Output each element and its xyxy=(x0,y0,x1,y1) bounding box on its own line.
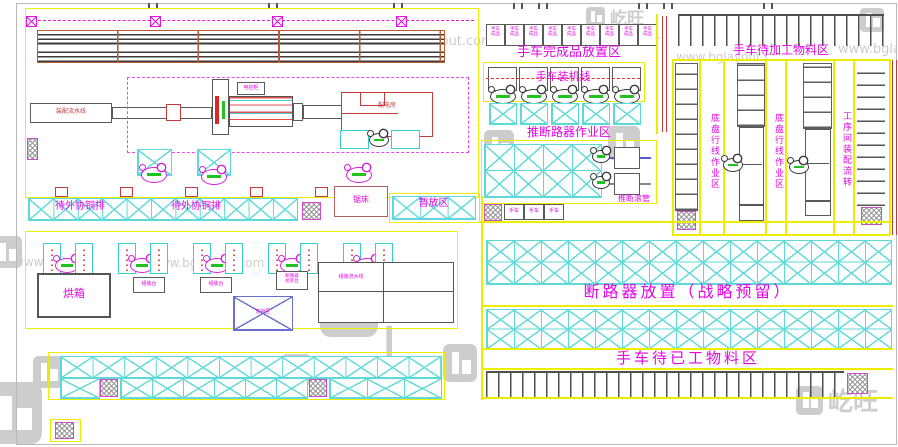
crossed-box-strip xyxy=(120,378,308,399)
cart-slot-label: 成品 xyxy=(601,33,618,38)
zone-label-copper-wait-1: 待外协铜排 xyxy=(30,202,130,213)
saw-machine-label: 锯床 xyxy=(335,196,387,204)
flow-rack-lines xyxy=(857,66,885,206)
parts-shelf xyxy=(75,243,93,274)
zone-line xyxy=(483,368,893,370)
cart-slot: 手车成品 xyxy=(543,24,562,46)
hatched-marker xyxy=(100,379,118,397)
frame-tick xyxy=(538,3,548,9)
cart-slot: 手车成品 xyxy=(600,24,619,46)
zone-line xyxy=(672,59,890,61)
cart-slot-label: 成品 xyxy=(506,33,523,38)
crossed-box-grid xyxy=(484,144,602,198)
operator-icon xyxy=(369,133,389,147)
operator-icon xyxy=(521,89,547,104)
cart-box-label: 手车 xyxy=(505,209,523,214)
zone-label-breaker-roller: 推断滚管 xyxy=(606,195,662,203)
assembly-table-block: 组装流水线 xyxy=(318,262,454,323)
wall-door-mark xyxy=(55,187,68,197)
operator-icon xyxy=(723,158,743,172)
cart-slot: 手车成品 xyxy=(562,24,581,46)
hold-box-label: 暂存区 xyxy=(234,310,292,315)
parts-shelf xyxy=(150,243,168,274)
cart-slot: 手车成品 xyxy=(505,24,524,46)
hatched-marker xyxy=(484,204,502,221)
breaker-bench-label: 组装台 xyxy=(277,280,307,285)
shelf-rack xyxy=(675,63,698,211)
zone-label-cart-install-line: 手车装机线 xyxy=(483,71,643,83)
workbench xyxy=(391,130,420,149)
zone-label-raw-material: 手车待加工物料区 xyxy=(678,44,884,57)
crossed-box-strip xyxy=(60,378,100,399)
cart-slot-label: 成品 xyxy=(563,33,580,38)
cart-slot-label: 成品 xyxy=(544,33,561,38)
cart-slot-label: 成品 xyxy=(487,33,504,38)
operator-icon xyxy=(789,160,809,174)
zone-line xyxy=(723,59,725,235)
operator-icon xyxy=(592,176,610,189)
cart-slot-label: 成品 xyxy=(582,33,599,38)
assembly-bench-label: 组装台 xyxy=(134,282,164,287)
cart-slot: 手车成品 xyxy=(619,24,638,46)
cart-slot: 手车成品 xyxy=(581,24,600,46)
building-wall xyxy=(892,60,897,235)
parts-shelf xyxy=(300,243,318,274)
assembly-bench: 组装台 xyxy=(133,277,165,293)
zone-label-breaker-push: 推断路器作业区 xyxy=(483,126,655,139)
zone-label-chassis-wiring-1: 底盘行线作业区 xyxy=(703,102,718,200)
cart-box: 手车 xyxy=(504,204,524,220)
oven-label: 烘箱 xyxy=(39,288,109,300)
breaker-bench: 断路器组装台 xyxy=(276,271,308,290)
hatched-marker xyxy=(847,373,868,394)
line-side-table xyxy=(805,201,831,216)
line-side-table xyxy=(739,205,764,221)
saw-machine-box: 锯床 xyxy=(334,186,388,217)
wall-door-mark xyxy=(315,187,328,197)
operator-icon xyxy=(614,89,640,104)
cart-slot: 手车成品 xyxy=(486,24,505,46)
assembly-bench: 组装台 xyxy=(200,277,232,293)
rail-marker xyxy=(26,16,37,27)
hold-crossed-box: 暂存区 xyxy=(233,296,293,331)
crossed-box-strip xyxy=(486,240,892,285)
zone-line xyxy=(483,305,893,307)
zone-label-temp-storage: 暂放区 xyxy=(389,199,478,210)
cantilever-rack-row xyxy=(678,14,884,46)
operator-icon xyxy=(490,89,516,104)
zone-line xyxy=(483,397,893,399)
crossed-box-strip xyxy=(329,378,442,399)
cart-box-label: 手车 xyxy=(545,209,563,214)
operator-icon xyxy=(141,167,167,183)
operator-icon xyxy=(583,89,609,104)
assembly-bench-label: 组装台 xyxy=(201,282,231,287)
zone-line xyxy=(672,234,890,236)
table-block-label: 组装流水线 xyxy=(319,275,383,280)
zone-label-finished-cart: 手车完成品放置区 xyxy=(483,46,655,60)
pallet-crossed-box xyxy=(520,103,548,125)
frame-tick xyxy=(663,3,673,9)
zone-line xyxy=(785,59,787,235)
oven-box: 烘箱 xyxy=(37,273,111,318)
cart-slot-label: 成品 xyxy=(525,33,542,38)
operator-icon xyxy=(346,167,372,183)
cart-slot-label: 成品 xyxy=(639,33,656,38)
frame-tick xyxy=(638,3,648,9)
cart-slot: 手车成品 xyxy=(524,24,543,46)
cart-slot-label: 成品 xyxy=(620,33,637,38)
operator-icon xyxy=(592,150,610,163)
workbench xyxy=(340,130,369,149)
zone-label-breaker-storage: 断路器放置（战略预留） xyxy=(486,284,890,301)
zone-divider xyxy=(656,14,658,134)
shelf-rack xyxy=(737,63,765,127)
wall-door-mark xyxy=(120,187,133,197)
wall-door-mark xyxy=(250,187,263,197)
operator-icon xyxy=(552,89,578,104)
zone-label-copper-wait-2: 待外协铜排 xyxy=(146,202,246,213)
zone-line xyxy=(889,59,891,235)
operator-icon xyxy=(201,169,227,185)
zone-line xyxy=(853,59,855,235)
cart-slot: 手车成品 xyxy=(638,24,657,46)
zone-line xyxy=(699,59,701,235)
rail-marker xyxy=(150,16,161,27)
frame-tick xyxy=(513,3,523,9)
hatched-marker xyxy=(309,379,327,397)
wall-door-mark xyxy=(185,187,198,197)
shelf-rack xyxy=(803,63,832,129)
zone-label-process-transfer: 工序间装配流转 xyxy=(835,100,850,198)
crane-rail-dashed-line xyxy=(28,20,474,21)
cart-box: 手车 xyxy=(524,204,544,220)
transfer-table xyxy=(614,147,640,169)
rail-marker xyxy=(272,16,283,27)
storage-rack-band xyxy=(37,30,445,63)
main-divider-horizontal xyxy=(480,221,893,223)
zone-line xyxy=(672,59,674,235)
parts-shelf xyxy=(225,243,243,274)
assembly-line-label: 装配流水线 xyxy=(31,109,111,116)
table-divider xyxy=(805,163,829,164)
hatched-marker xyxy=(302,202,321,220)
pallet-crossed-box xyxy=(489,103,517,125)
frame-tick xyxy=(763,3,773,9)
pallet-crossed-box xyxy=(613,103,641,125)
wall-hatch xyxy=(27,138,38,160)
pallet-crossed-box xyxy=(582,103,610,125)
zone-label-finished-material: 手车待已工物料区 xyxy=(486,351,890,367)
crossed-box-strip xyxy=(486,309,892,350)
zone-label-chassis-wiring-2: 底盘行线作业区 xyxy=(767,102,782,200)
cad-floor-plan: www.bglayout.com www.bglayout.com www.bg… xyxy=(0,0,898,447)
cantilever-rack-row xyxy=(486,371,844,398)
crossed-box-strip xyxy=(60,356,442,379)
building-wall xyxy=(662,16,667,132)
pallet-crossed-box xyxy=(551,103,579,125)
hatched-marker xyxy=(55,422,74,439)
rail-marker xyxy=(396,16,407,27)
cart-box-label: 手车 xyxy=(525,209,543,214)
assembly-line-machine: 装配流水线 xyxy=(30,103,112,123)
transfer-table xyxy=(614,173,640,195)
cart-box: 手车 xyxy=(544,204,564,220)
